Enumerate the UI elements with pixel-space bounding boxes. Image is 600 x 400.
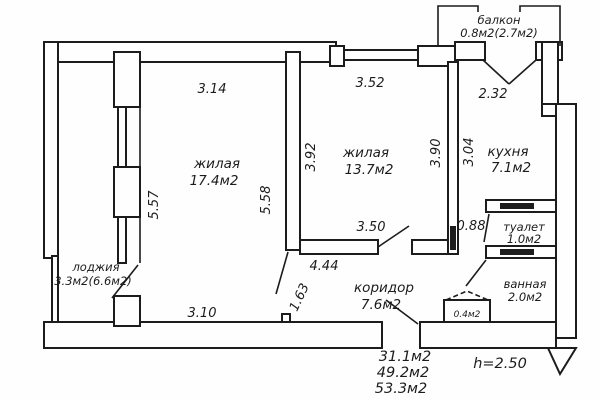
kitchen-name: кухня xyxy=(487,144,528,160)
bath-name: ванная xyxy=(504,277,547,291)
dim-living1-top: 3.14 xyxy=(198,82,227,97)
wall-room1-left-b xyxy=(114,167,140,217)
floor-plan: балкон 0.8м2(2.7м2) жилая 17.4м2 3.14 5.… xyxy=(0,0,600,400)
living1-area: 17.4м2 xyxy=(190,173,239,189)
living1-name: жилая xyxy=(193,156,240,172)
wall-room2-top-post xyxy=(330,46,344,66)
dim-passage-width: 0.88 xyxy=(457,219,486,234)
wall-corner-cut xyxy=(548,348,576,374)
wall-room2-corridor xyxy=(300,240,378,254)
door-leaf-room1 xyxy=(276,252,288,294)
wall-bottom-right xyxy=(420,322,556,348)
dim-living1-bottom: 3.10 xyxy=(188,306,217,321)
bath-area: 2.0м2 xyxy=(508,290,542,304)
fill-bar-toilet-top xyxy=(500,203,534,209)
dim-corridor-length: 4.44 xyxy=(310,259,339,274)
fill-bar-passage xyxy=(450,226,456,250)
summary-living-area: 31.1м2 xyxy=(379,349,431,365)
door-swing-balcony xyxy=(483,60,536,84)
dim-kitchen-top: 2.32 xyxy=(479,87,508,102)
fill-bar-toilet-bath xyxy=(500,249,534,255)
balcony-name: балкон xyxy=(478,13,521,27)
wall-loggia-outer xyxy=(52,256,58,326)
loggia-area: 3.3м2(6.6м2) xyxy=(54,274,132,288)
balcony-area: 0.8м2(2.7м2) xyxy=(460,26,538,40)
kitchen-area: 7.1м2 xyxy=(491,160,531,176)
dim-living2-bottom: 3.50 xyxy=(357,220,386,235)
dim-living1-right: 5.58 xyxy=(259,186,274,215)
dim-living2-left: 3.92 xyxy=(304,143,319,172)
door-folding-closet xyxy=(446,291,488,300)
summary-floor-area: 49.2м2 xyxy=(377,365,429,381)
dim-living2-top: 3.52 xyxy=(356,76,385,91)
dim-kitchen-left: 3.04 xyxy=(462,138,477,167)
door-leaf-bath xyxy=(466,260,486,286)
ceiling-height: h=2.50 xyxy=(473,356,527,372)
wall-room1-left-a xyxy=(114,52,140,107)
summary-total-area: 53.3м2 xyxy=(375,381,427,397)
wall-bottom-left xyxy=(44,322,382,348)
corridor-area: 7.6м2 xyxy=(361,297,401,313)
window-room1-b xyxy=(118,217,126,263)
door-hinge-room1 xyxy=(282,314,290,322)
wall-left-upper xyxy=(44,42,58,258)
wall-room1-left-c xyxy=(114,296,140,326)
window-room2 xyxy=(344,50,418,60)
loggia-name: лоджия xyxy=(71,260,119,274)
corridor-name: коридор xyxy=(354,280,414,296)
toilet-area: 1.0м2 xyxy=(507,232,541,246)
dim-corridor-door: 1.63 xyxy=(287,281,313,314)
dim-living1-left: 5.57 xyxy=(147,190,162,220)
floor-plan-canvas: балкон 0.8м2(2.7м2) жилая 17.4м2 3.14 5.… xyxy=(0,0,600,400)
wall-room-divider xyxy=(286,52,300,250)
wall-right-lower xyxy=(556,104,576,338)
dim-living2-right: 3.90 xyxy=(429,139,444,168)
window-room1-a xyxy=(118,107,126,167)
living2-area: 13.7м2 xyxy=(345,162,394,178)
closet-area: 0.4м2 xyxy=(454,310,481,320)
living2-name: жилая xyxy=(342,145,389,161)
wall-kitchen-top-left xyxy=(455,42,485,60)
